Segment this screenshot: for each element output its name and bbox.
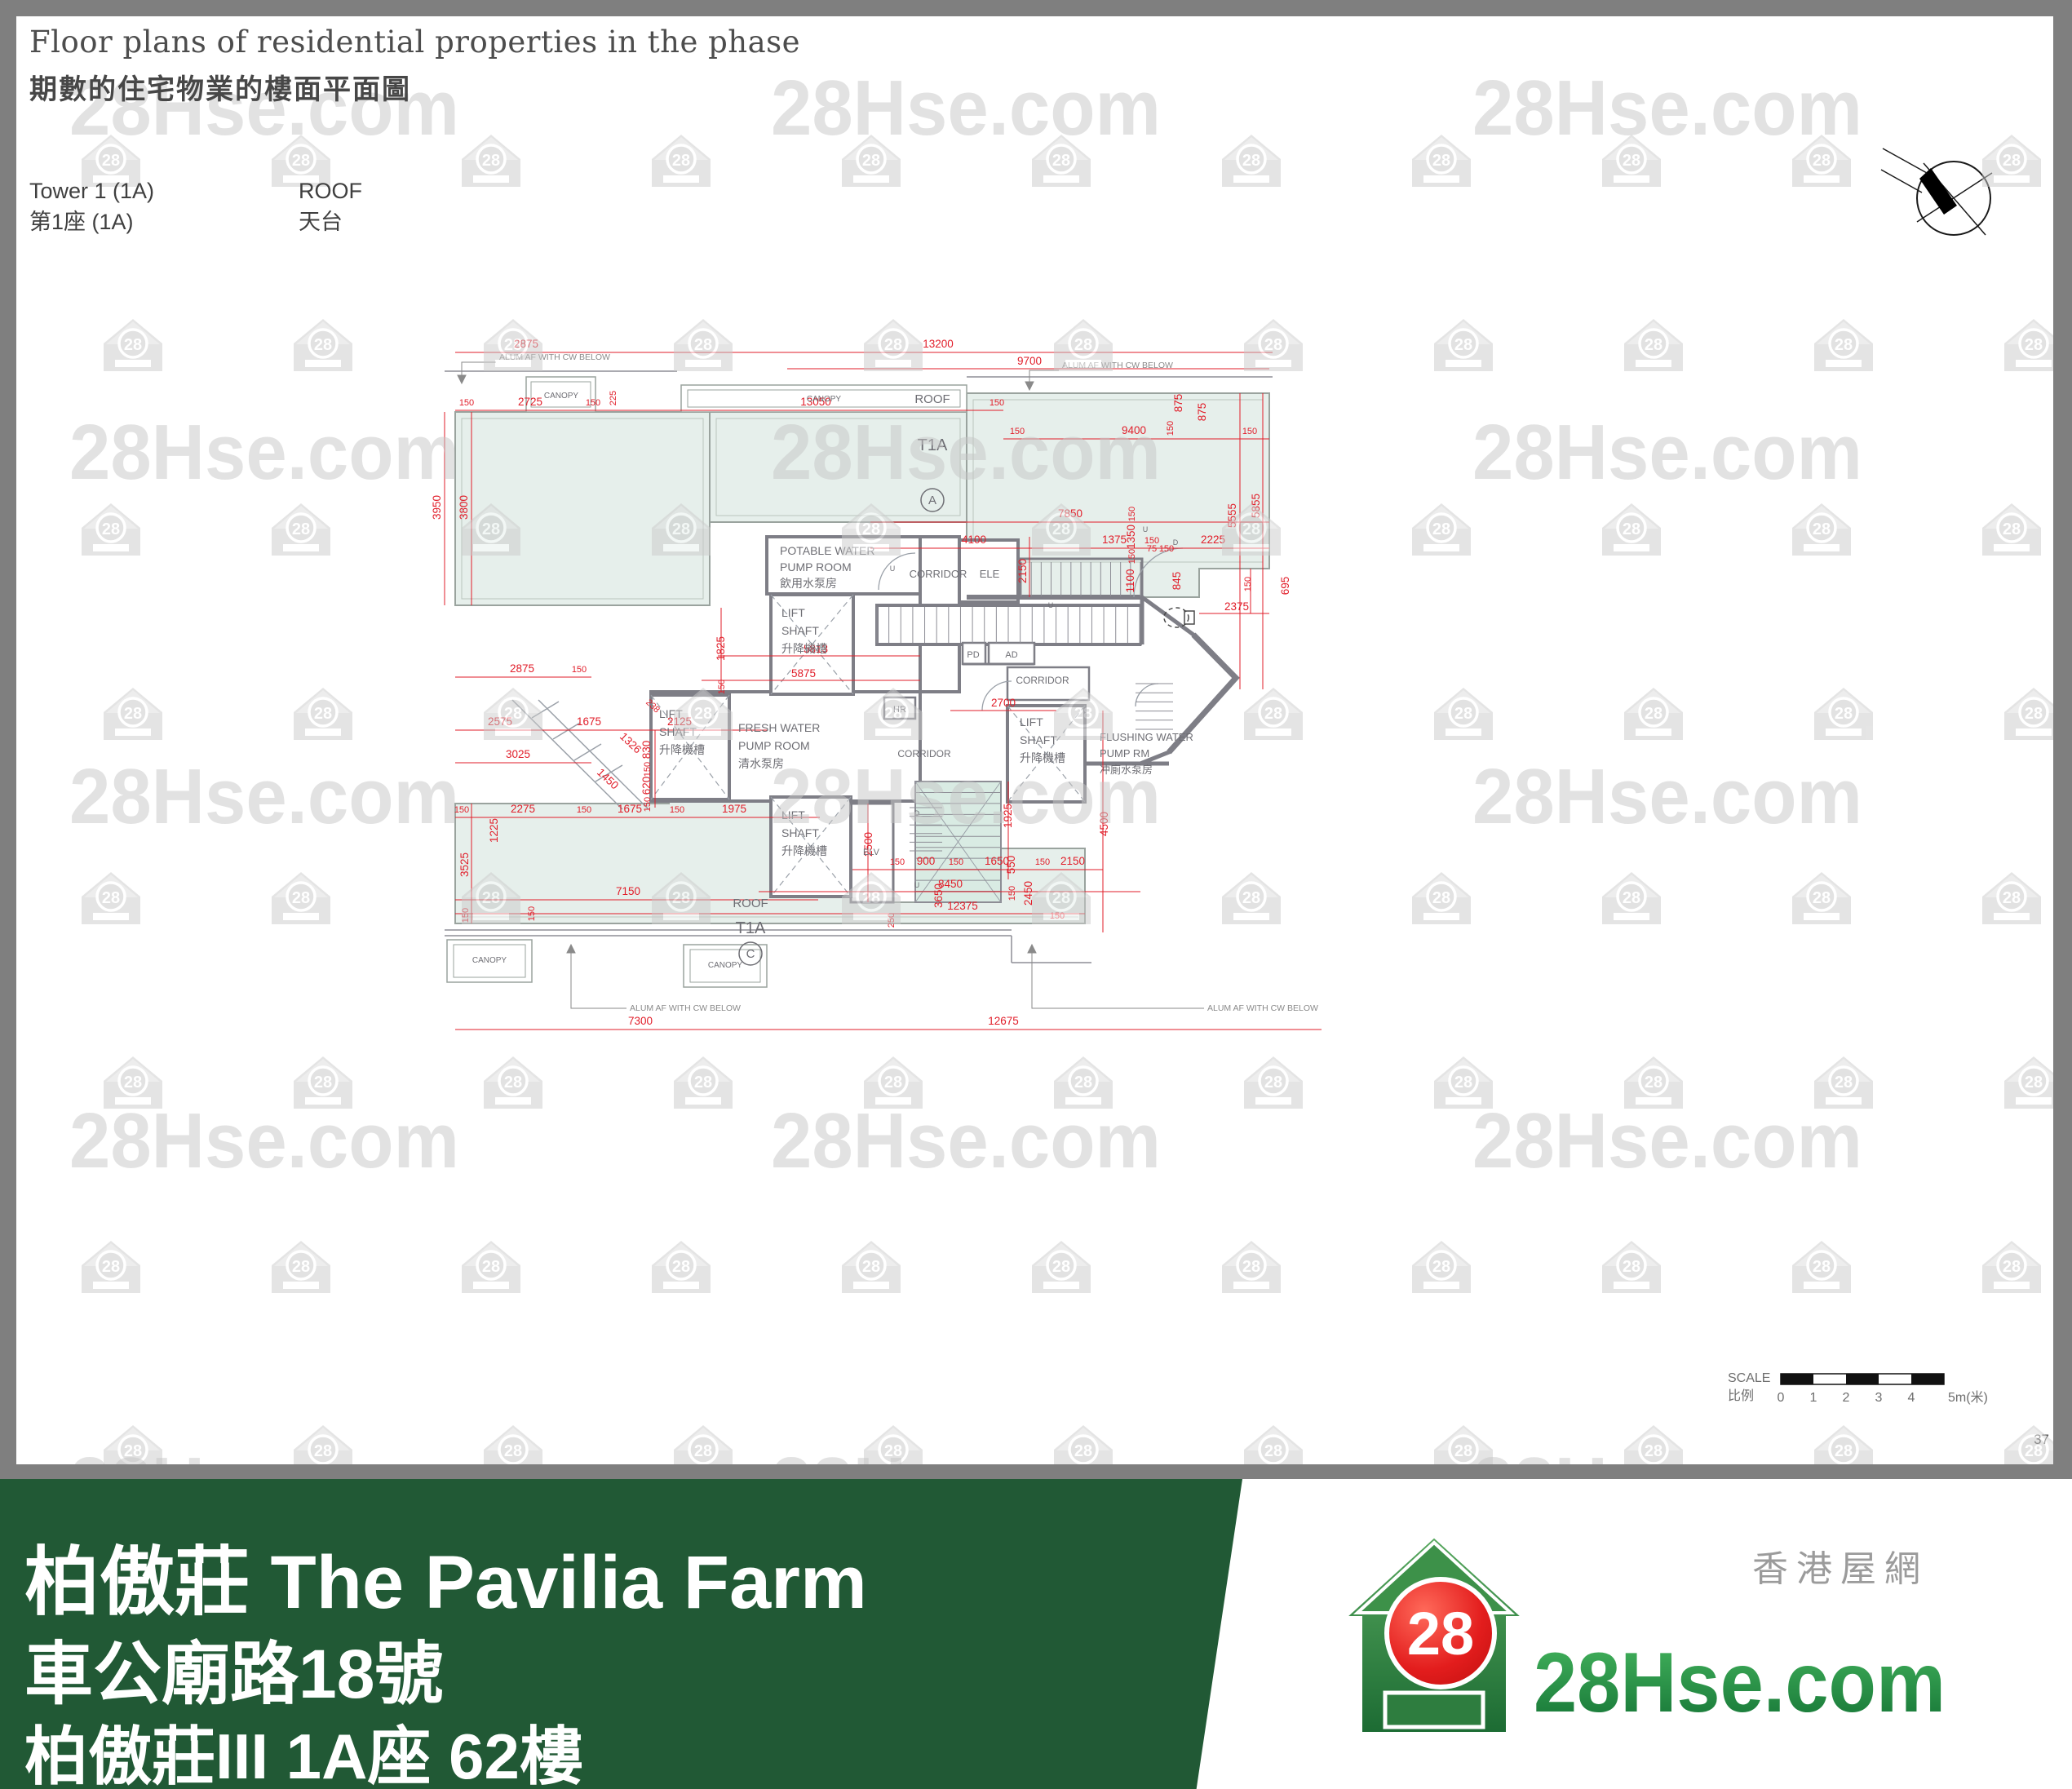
dimension-label: 7850 <box>1058 507 1082 520</box>
room-label: ELV <box>863 848 880 857</box>
room-label: LIFT <box>1020 715 1043 728</box>
dimension-label: 5875 <box>791 667 816 680</box>
room-label: SHAFT <box>659 725 697 738</box>
dimension-label: 3525 <box>458 852 471 877</box>
plan-note: ALUM AF WITH CW BELOW <box>499 352 610 362</box>
dimension-label: 250 <box>887 913 897 928</box>
dimension-label: 830 <box>640 741 653 759</box>
dimension-label: 4500 <box>1098 812 1110 836</box>
dimension-label: 3025 <box>506 748 530 760</box>
dimension-label: 150 <box>670 805 684 815</box>
dimension-label: 12675 <box>988 1015 1019 1027</box>
dimension-label: 2725 <box>518 396 542 408</box>
dimension-label: 150 <box>1050 911 1065 921</box>
room-label: 升降機槽 <box>781 642 827 655</box>
dimension-label: 150 <box>527 906 537 921</box>
room-label: 冲廁水泵房 <box>1100 764 1153 776</box>
dimension-label: 7150 <box>616 885 640 897</box>
room-label: POTABLE WATER <box>780 544 874 557</box>
room-label: 升降機槽 <box>781 844 827 857</box>
dimension-label: 12375 <box>947 900 978 912</box>
svg-text:3: 3 <box>1875 1391 1883 1405</box>
room-label: FLUSHING WATER <box>1100 731 1193 743</box>
dimension-label: 2700 <box>991 697 1016 709</box>
north-compass-icon <box>1881 148 1992 235</box>
room-label: PUMP RM <box>1100 747 1149 759</box>
dimension-label: 2875 <box>510 662 534 675</box>
dimension-label: 150 <box>890 857 905 867</box>
plan-note: ALUM AF WITH CW BELOW <box>630 1003 741 1013</box>
room-label: U <box>914 881 920 889</box>
room-label: SHAFT <box>781 624 819 637</box>
room-label: 升降機槽 <box>659 743 705 756</box>
dimension-label: 620 <box>640 777 653 795</box>
svg-text:2: 2 <box>1843 1391 1850 1405</box>
room-label: SHAFT <box>781 826 819 839</box>
dimension-label: 225 <box>609 391 618 405</box>
room-label: 升降機槽 <box>1020 751 1065 764</box>
dimension-label: 150 <box>1007 886 1017 901</box>
tower-label-zh: 第1座 (1A) <box>29 206 154 237</box>
property-unit: 柏傲莊III 1A座 62樓 <box>24 1706 583 1789</box>
dimension-label: 5855 <box>1250 494 1262 518</box>
header: Floor plans of residential properties in… <box>29 24 800 107</box>
logo-badge: 28 <box>1407 1600 1474 1667</box>
dimension-label: 7300 <box>628 1015 653 1027</box>
dimension-label: 150 <box>643 762 653 777</box>
svg-text:4: 4 <box>1908 1391 1915 1405</box>
floorplan-page: 2875132009700150272515022513050150150940… <box>0 0 2072 1789</box>
dimension-label: 9400 <box>1122 424 1146 436</box>
dimension-label: 1825 <box>715 636 727 661</box>
dimension-label: 2275 <box>511 803 535 815</box>
room-label: CORRIDOR <box>897 748 951 759</box>
dimension-label: 3800 <box>458 495 470 520</box>
roof-area-topleft <box>455 412 710 605</box>
property-banner: 柏傲莊 The Pavilia Farm 車公廟路18號 柏傲莊III 1A座 … <box>0 1479 1242 1789</box>
dimension-label: 875 <box>1196 403 1208 422</box>
dimension-label: 150 <box>454 805 469 815</box>
room-label: SHAFT <box>1020 733 1057 746</box>
floor-label: ROOF 天台 <box>299 175 362 237</box>
dimension-label: 150 <box>1242 427 1257 436</box>
room-label: LIFT <box>781 808 805 821</box>
dimension-label: 150 <box>461 908 471 923</box>
dimension-label: 875 <box>1172 394 1184 413</box>
dimension-label: 2575 <box>488 715 512 728</box>
room-label: CANOPY <box>708 961 743 970</box>
room-label: 清水泵房 <box>738 757 784 770</box>
room-label: HR <box>893 705 906 715</box>
room-label: U <box>890 565 896 573</box>
room-label: CORRIDOR <box>910 568 967 580</box>
logo-tagline: 香港屋網 <box>1752 1549 1928 1589</box>
dimension-label: 1225 <box>488 818 500 843</box>
room-label: U <box>1143 525 1149 534</box>
svg-text:5m(米): 5m(米) <box>1948 1390 1988 1405</box>
brand-area: 28 28Hse.com 香港屋網 <box>1305 1479 2072 1789</box>
tower-label: Tower 1 (1A) 第1座 (1A) <box>29 175 154 237</box>
room-label: CANOPY <box>807 395 842 404</box>
room-label: CORRIDOR <box>1016 675 1069 686</box>
svg-text:0: 0 <box>1778 1391 1785 1405</box>
floor-label-zh: 天台 <box>299 206 362 237</box>
room-label: ELE <box>980 568 1000 580</box>
dimension-label: 3650 <box>932 883 945 908</box>
dimension-label: 2150 <box>1060 855 1085 867</box>
page-title-zh: 期數的住宅物業的樓面平面圖 <box>29 67 800 107</box>
frame-bar-right <box>2053 0 2072 1464</box>
floor-label-en: ROOF <box>299 175 362 206</box>
dimension-label: 2225 <box>1201 534 1225 546</box>
page-number: 37 <box>2034 1432 2049 1447</box>
plan-note: ALUM AF WITH CW BELOW <box>1207 1003 1318 1013</box>
room-label: A <box>928 494 936 507</box>
frame-bar-left <box>0 0 16 1464</box>
room-label: AD <box>1005 650 1017 660</box>
property-address: 車公廟路18號 <box>24 1619 443 1718</box>
room-label: PD <box>967 650 979 660</box>
scale-bar: SCALE 比例 01234 5m(米) <box>1728 1371 1988 1405</box>
dimension-label: 150 <box>643 797 653 812</box>
room-label: CANOPY <box>472 956 507 965</box>
dimension-label: 4100 <box>962 534 986 546</box>
dimension-label: 1350 <box>1125 525 1137 549</box>
dimension-label: 150 <box>1166 421 1175 436</box>
dimension-label: 2375 <box>1224 600 1249 613</box>
dimension-label: 150 <box>990 398 1004 408</box>
room-label: PUMP ROOM <box>738 739 810 752</box>
room-label: 飲用水泵房 <box>780 577 837 590</box>
svg-text:比例: 比例 <box>1728 1388 1754 1403</box>
plan-note: ALUM AF WITH CW BELOW <box>1062 361 1173 370</box>
stair-main <box>877 605 1142 644</box>
dimension-label: 1375 <box>1102 534 1127 546</box>
frame-bar-middle <box>0 1464 2072 1479</box>
dimension-label: 900 <box>917 855 936 867</box>
logo-brand: 28Hse.com <box>1534 1636 1946 1730</box>
svg-text:1: 1 <box>1810 1391 1817 1405</box>
dimension-label: 2150 <box>1016 559 1029 583</box>
room-label: U <box>1048 601 1054 609</box>
room-label: T1A <box>918 436 948 454</box>
dimension-label: 150 <box>717 680 727 694</box>
room-label: PUMP ROOM <box>780 560 852 573</box>
dimension-label: 150 <box>1243 577 1253 591</box>
room-label: FRESH WATER <box>738 721 820 734</box>
svg-text:SCALE: SCALE <box>1728 1371 1770 1385</box>
dimension-label: 1100 <box>1124 569 1136 592</box>
dimension-label: 150 <box>1010 427 1025 436</box>
dimension-label: 1650 <box>985 855 1009 867</box>
dimension-label: 150 <box>459 398 474 408</box>
dimension-label: 1975 <box>722 803 746 815</box>
dimension-label: 1925 <box>1002 804 1014 828</box>
tower-label-en: Tower 1 (1A) <box>29 175 154 206</box>
room-label: T1A <box>736 919 766 937</box>
room-label: LIFT <box>659 707 683 720</box>
dimension-label: 3950 <box>431 495 443 520</box>
dimension-label: 1450 <box>595 766 621 791</box>
dimension-label: 150 <box>1159 544 1174 554</box>
dimension-label: 150 <box>1127 507 1137 521</box>
room-label: D <box>914 809 920 817</box>
dimension-label: 75 <box>1147 544 1157 554</box>
room-label: C <box>746 947 755 961</box>
dimension-label: 150 <box>949 857 963 867</box>
dimension-label: 150 <box>577 805 591 815</box>
frame-bar-top <box>0 0 2072 16</box>
property-name: 柏傲莊 The Pavilia Farm <box>24 1521 867 1630</box>
room-label: CANOPY <box>544 392 579 401</box>
dimension-label: 2450 <box>1022 881 1034 906</box>
room-label: ROOF <box>914 392 950 406</box>
dimension-label: 845 <box>1171 572 1183 591</box>
dimension-label: 9700 <box>1017 355 1042 367</box>
room-label: LIFT <box>781 606 805 619</box>
dimension-label: 150 <box>586 398 600 408</box>
logo-house-icon: 28 <box>1344 1536 1524 1734</box>
dimension-label: 1675 <box>577 715 601 728</box>
dimension-label: 5555 <box>1226 503 1238 528</box>
dimension-label: 150 <box>1127 549 1137 564</box>
dimension-label: 150 <box>572 665 587 675</box>
dimension-label: 150 <box>1035 857 1050 867</box>
room-label: D <box>1173 538 1179 547</box>
page-title-en: Floor plans of residential properties in… <box>29 24 800 60</box>
dimension-label: 2875 <box>514 338 538 350</box>
dimension-label: 1675 <box>618 803 642 815</box>
room-label: ROOF <box>733 897 768 910</box>
dimension-label: 695 <box>1279 577 1291 596</box>
dimension-label: 13200 <box>923 338 954 350</box>
